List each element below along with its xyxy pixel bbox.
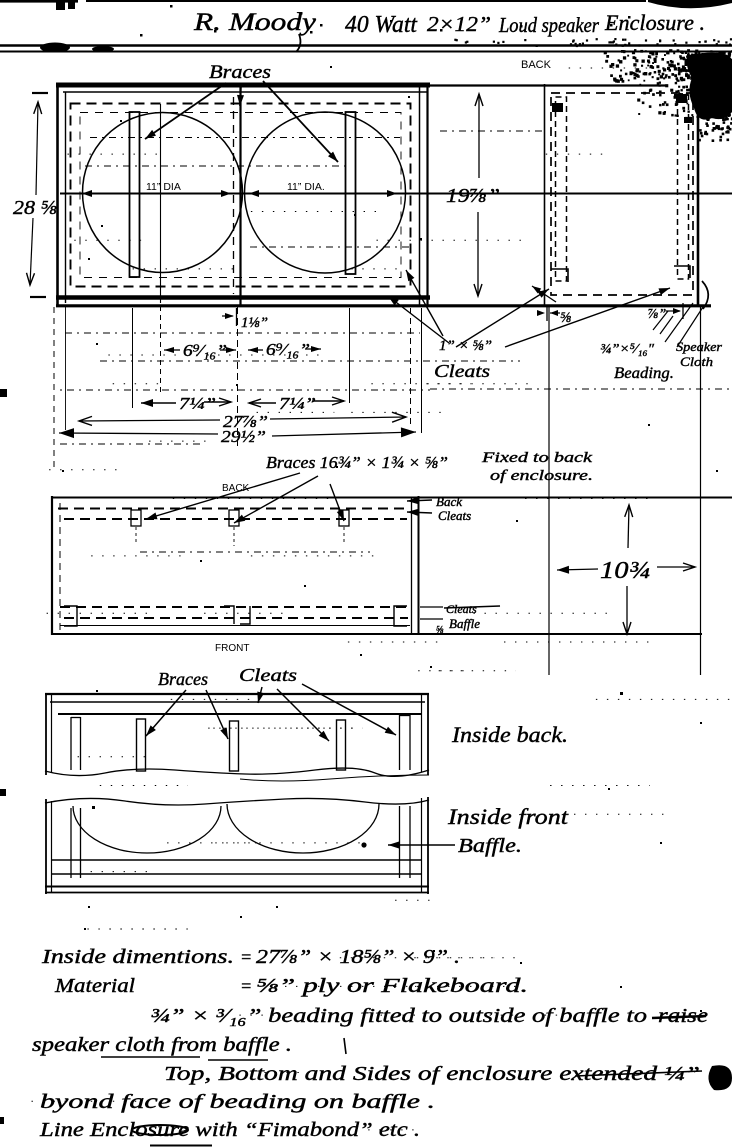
svg-text:⅝” ply or Flakeboard.: ⅝” ply or Flakeboard. (256, 975, 528, 997)
svg-text:Baffle.: Baffle. (458, 835, 522, 857)
svg-text:BACK: BACK (222, 483, 250, 494)
svg-text:Baffle: Baffle (449, 616, 480, 631)
svg-text:1⅛”: 1⅛” (241, 315, 268, 331)
svg-text:¾”×⁵⁄₁₆″: ¾”×⁵⁄₁₆″ (600, 342, 654, 357)
svg-text:¾” × ³⁄₁₆” beading fitted to o: ¾” × ³⁄₁₆” beading fitted to outside of … (150, 1005, 647, 1027)
svg-text:Cleats: Cleats (446, 602, 477, 616)
svg-text:7¼”: 7¼” (179, 394, 216, 413)
svg-text:6⁹⁄₁₆”: 6⁹⁄₁₆” (266, 340, 310, 359)
svg-text:29½”: 29½” (221, 427, 266, 446)
svg-text:of enclosure.: of enclosure. (490, 468, 593, 484)
svg-text:Cleats: Cleats (438, 508, 471, 523)
svg-text:40 Watt: 40 Watt (345, 12, 418, 38)
svg-text:⅞”: ⅞” (648, 307, 667, 322)
svg-text:⅝: ⅝ (436, 625, 444, 636)
svg-text:19⅞”: 19⅞” (446, 185, 500, 207)
svg-text:Cleats: Cleats (239, 665, 297, 685)
svg-text:Cloth: Cloth (680, 354, 713, 369)
svg-text:Inside back.: Inside back. (451, 722, 568, 747)
svg-text:Inside front: Inside front (447, 804, 569, 829)
svg-text:FRONT: FRONT (215, 643, 249, 654)
svg-text:Speaker: Speaker (676, 339, 723, 354)
svg-text:Beading.: Beading. (614, 365, 674, 382)
svg-text:10¾: 10¾ (600, 558, 650, 584)
svg-text:Braces: Braces (158, 669, 208, 689)
svg-text:Loud speaker: Loud speaker (498, 13, 600, 37)
svg-text:=: = (240, 947, 252, 967)
svg-text:byond face of beading on baffl: byond face of beading on baffle . (40, 1091, 435, 1113)
svg-text:Enclosure .: Enclosure . (604, 10, 705, 35)
svg-text:Back: Back (436, 494, 462, 509)
svg-text:BACK: BACK (521, 59, 552, 71)
svg-text:Braces 16¾” × 1¾ × ⅝”: Braces 16¾” × 1¾ × ⅝” (266, 453, 448, 472)
svg-text:27⅞” × 18⅝” × 9” .: 27⅞” × 18⅝” × 9” . (256, 946, 460, 968)
svg-text:Line Enclosure with “Fimabond”: Line Enclosure with “Fimabond” etc . (39, 1119, 420, 1141)
svg-text:11” DIA.: 11” DIA. (287, 181, 325, 193)
svg-text:2×12”: 2×12” (427, 12, 491, 36)
svg-text:11” DIA: 11” DIA (146, 181, 181, 193)
svg-text:Cleats: Cleats (434, 361, 490, 381)
svg-text:Fixed to back: Fixed to back (481, 450, 593, 466)
svg-text:speaker cloth from baffle .: speaker cloth from baffle . (32, 1034, 292, 1056)
svg-text:Inside dimentions.: Inside dimentions. (41, 946, 234, 968)
svg-text:=: = (240, 976, 252, 996)
svg-text:Material: Material (54, 975, 136, 997)
svg-text:28 ⅝: 28 ⅝ (13, 197, 57, 219)
svg-text:7¼”: 7¼” (279, 394, 316, 413)
svg-text:R. Moody: R. Moody (193, 9, 317, 36)
svg-text:Braces: Braces (209, 62, 271, 83)
